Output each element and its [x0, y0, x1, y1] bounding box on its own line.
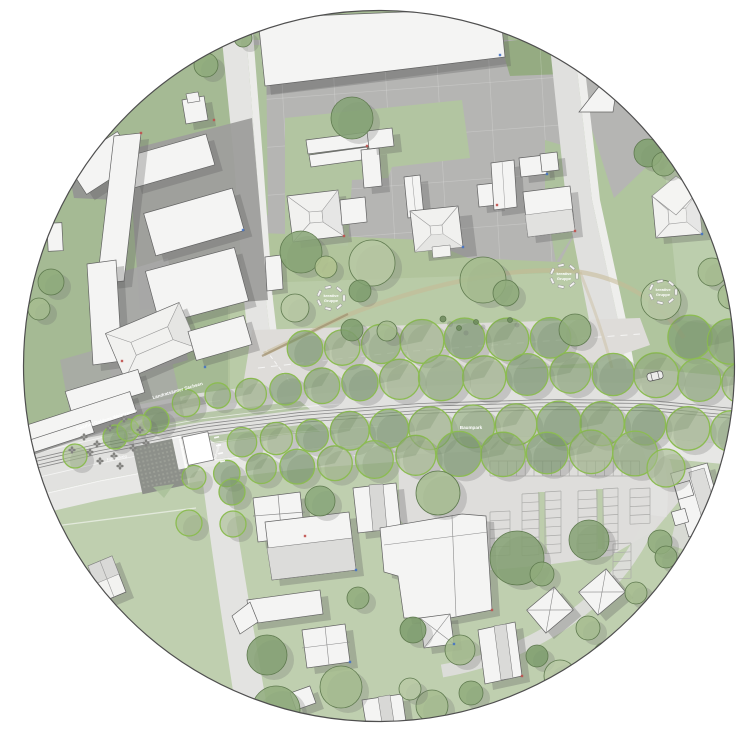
svg-text:Gruppe: Gruppe — [324, 298, 339, 303]
svg-text:Gruppe: Gruppe — [557, 276, 572, 281]
svg-text:Baumpark: Baumpark — [460, 425, 483, 430]
svg-text:Gruppe: Gruppe — [656, 292, 671, 297]
